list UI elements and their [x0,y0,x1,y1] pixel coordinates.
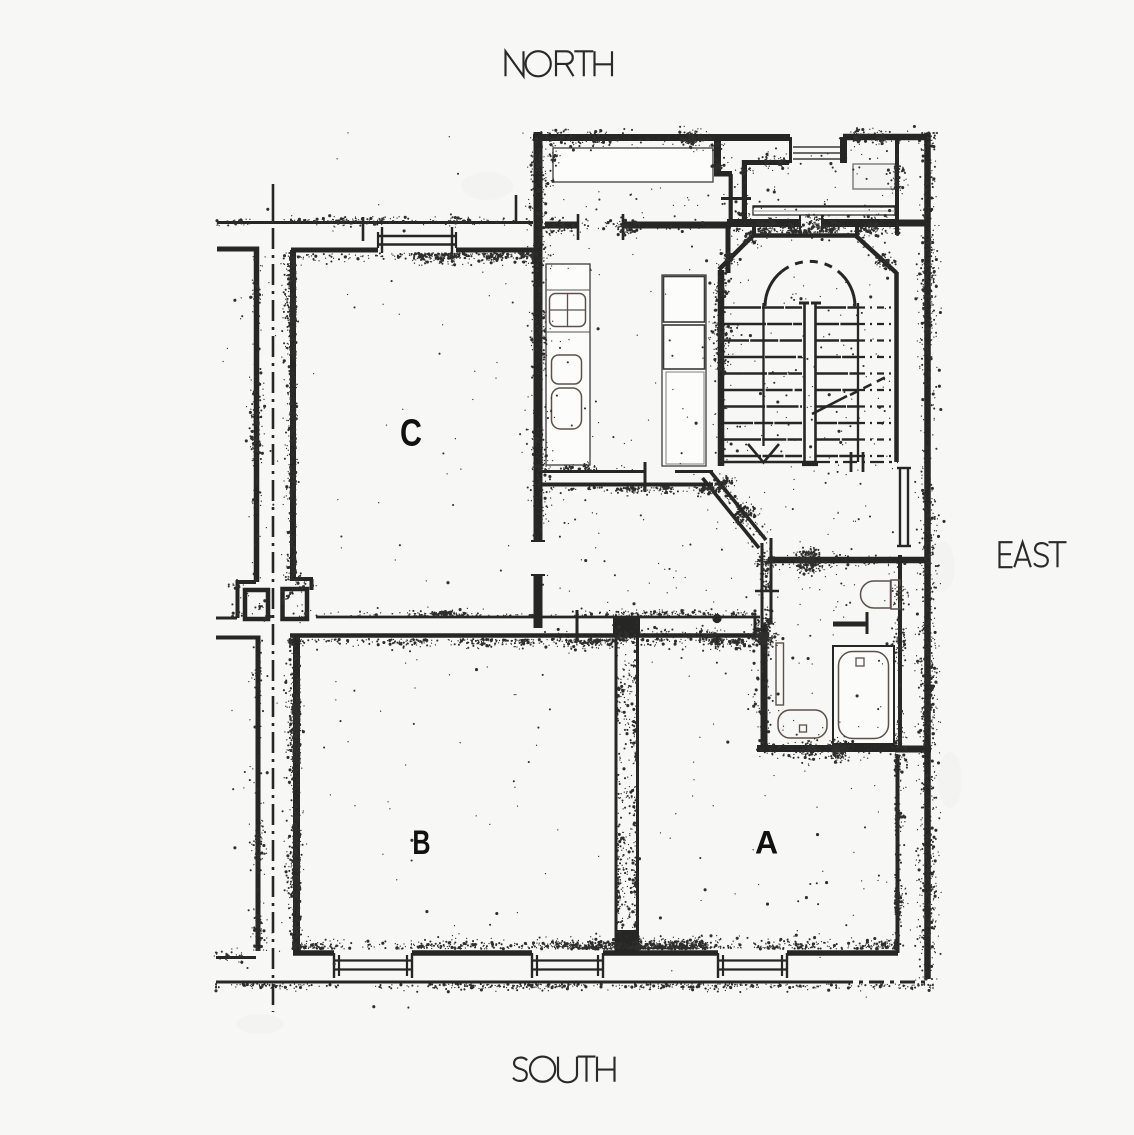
svg-text:C: C [400,412,422,454]
svg-text:B: B [412,824,430,862]
svg-text:A: A [755,825,778,861]
